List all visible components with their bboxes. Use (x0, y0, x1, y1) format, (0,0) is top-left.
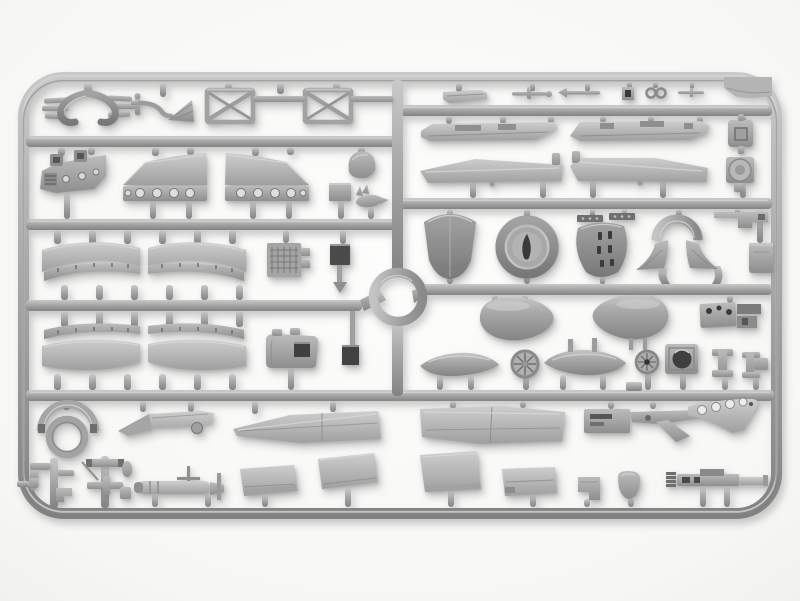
slat-cluster-lower-right (148, 323, 246, 370)
spoked-wheel-large (512, 351, 538, 377)
trapezoid-panel-a (240, 465, 298, 496)
spoked-wheel-small (636, 351, 658, 373)
headrest-fairing (349, 151, 376, 178)
hinge-strip-b (609, 213, 635, 220)
sprue-illustration (0, 0, 800, 601)
fuselage-strip-left (421, 122, 557, 141)
sprue-photo (0, 0, 800, 601)
box-with-round-hole (665, 344, 698, 374)
hinge-strip-a (577, 215, 603, 222)
small-square-fitting (622, 87, 634, 100)
slat-cluster-lower-left (42, 323, 140, 370)
trapezoid-panel-c (502, 467, 557, 496)
block-part (749, 243, 773, 273)
fuselage-strip-right (570, 121, 710, 141)
wing-panel-right (420, 406, 565, 444)
trapezoid-panel-b (420, 451, 481, 492)
access-plate (329, 183, 351, 201)
